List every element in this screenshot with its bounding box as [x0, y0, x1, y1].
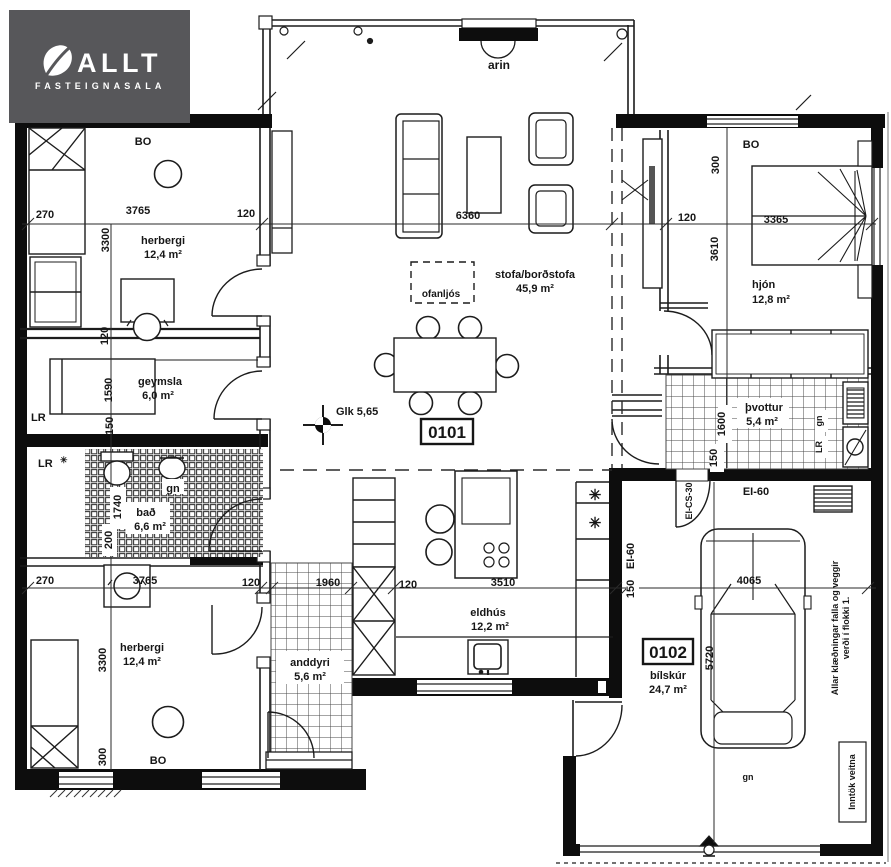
- svg-text:gn: gn: [814, 416, 824, 427]
- svg-text:BO: BO: [135, 136, 152, 148]
- svg-text:stofa/borðstofa: stofa/borðstofa: [495, 269, 576, 281]
- svg-text:3300: 3300: [97, 648, 109, 672]
- svg-text:verði í flokki 1.: verði í flokki 1.: [841, 597, 851, 660]
- svg-text:✳: ✳: [589, 487, 602, 504]
- svg-text:5720: 5720: [704, 646, 716, 670]
- svg-text:6,6 m²: 6,6 m²: [134, 521, 166, 533]
- svg-text:6360: 6360: [456, 210, 480, 222]
- svg-text:1740: 1740: [112, 495, 124, 519]
- svg-text:120: 120: [237, 208, 255, 220]
- svg-text:120: 120: [99, 327, 111, 345]
- svg-text:gn: gn: [743, 772, 754, 782]
- svg-text:270: 270: [36, 209, 54, 221]
- svg-text:120: 120: [399, 579, 417, 591]
- svg-text:200: 200: [103, 531, 115, 549]
- svg-text:0102: 0102: [649, 643, 687, 662]
- svg-text:5,4 m²: 5,4 m²: [746, 416, 778, 428]
- svg-text:EI-CS-30: EI-CS-30: [684, 482, 694, 519]
- svg-text:LR: LR: [31, 412, 46, 424]
- svg-text:150: 150: [708, 449, 720, 467]
- svg-text:anddyri: anddyri: [290, 657, 330, 669]
- svg-text:150: 150: [104, 417, 116, 435]
- svg-text:geymsla: geymsla: [138, 376, 183, 388]
- svg-text:300: 300: [97, 748, 109, 766]
- svg-text:eldhús: eldhús: [470, 607, 505, 619]
- svg-text:LR: LR: [814, 441, 824, 453]
- svg-text:Allar klæðningar falla og vegg: Allar klæðningar falla og veggir: [830, 560, 840, 695]
- svg-text:þvottur: þvottur: [745, 402, 784, 414]
- svg-text:BO: BO: [150, 755, 167, 767]
- svg-text:Glk 5,65: Glk 5,65: [336, 406, 378, 418]
- svg-text:bílskúr: bílskúr: [650, 670, 687, 682]
- svg-text:gn: gn: [166, 483, 180, 495]
- svg-text:ALLT: ALLT: [77, 48, 162, 78]
- svg-text:1960: 1960: [316, 577, 340, 589]
- svg-text:herbergi: herbergi: [120, 642, 164, 654]
- svg-text:✳: ✳: [589, 515, 602, 532]
- svg-text:3765: 3765: [126, 205, 150, 217]
- svg-text:1600: 1600: [716, 412, 728, 436]
- svg-text:120: 120: [242, 577, 260, 589]
- svg-text:✳: ✳: [60, 455, 68, 465]
- svg-text:0101: 0101: [428, 423, 466, 442]
- svg-text:3300: 3300: [100, 228, 112, 252]
- svg-text:3610: 3610: [709, 237, 721, 261]
- svg-text:3765: 3765: [133, 575, 157, 587]
- svg-text:6,0 m²: 6,0 m²: [142, 390, 174, 402]
- svg-text:4065: 4065: [737, 575, 761, 587]
- svg-text:Inntök veitna: Inntök veitna: [847, 753, 857, 810]
- svg-text:120: 120: [678, 212, 696, 224]
- svg-text:EI-60: EI-60: [743, 486, 769, 498]
- svg-text:24,7 m²: 24,7 m²: [649, 684, 687, 696]
- svg-text:hjón: hjón: [752, 279, 775, 291]
- svg-text:herbergi: herbergi: [141, 235, 185, 247]
- svg-text:12,2 m²: 12,2 m²: [471, 621, 509, 633]
- svg-text:45,9 m²: 45,9 m²: [516, 283, 554, 295]
- svg-text:1590: 1590: [103, 378, 115, 402]
- svg-text:5,6 m²: 5,6 m²: [294, 671, 326, 683]
- svg-text:EI-60: EI-60: [625, 543, 637, 569]
- svg-text:BO: BO: [743, 139, 760, 151]
- svg-text:270: 270: [36, 575, 54, 587]
- svg-text:12,4 m²: 12,4 m²: [144, 249, 182, 261]
- svg-text:12,8 m²: 12,8 m²: [752, 294, 790, 306]
- svg-text:3510: 3510: [491, 577, 515, 589]
- svg-text:FASTEIGNASALA: FASTEIGNASALA: [35, 81, 166, 91]
- svg-text:12,4 m²: 12,4 m²: [123, 656, 161, 668]
- svg-text:150: 150: [625, 580, 637, 598]
- svg-text:ofanljós: ofanljós: [422, 289, 461, 300]
- svg-text:bað: bað: [136, 507, 156, 519]
- svg-text:LR: LR: [38, 458, 53, 470]
- svg-text:300: 300: [710, 156, 722, 174]
- svg-text:arin: arin: [488, 58, 510, 72]
- svg-text:3365: 3365: [764, 214, 788, 226]
